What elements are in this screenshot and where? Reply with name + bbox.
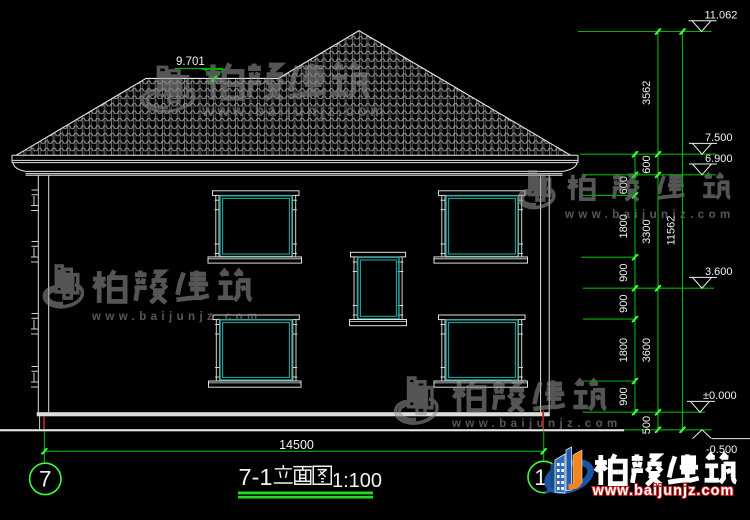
svg-text:14500: 14500 (279, 438, 314, 452)
svg-text:900: 900 (618, 264, 630, 282)
svg-text:1800: 1800 (618, 338, 630, 362)
svg-text:7-1: 7-1 (239, 464, 273, 490)
svg-text:±0.000: ±0.000 (703, 390, 737, 402)
svg-text:1: 1 (534, 465, 547, 490)
svg-text:9.701: 9.701 (176, 56, 205, 68)
svg-text:www.baijunjz.com: www.baijunjz.com (592, 483, 735, 499)
svg-text:900: 900 (618, 295, 630, 313)
svg-text:1:100: 1:100 (332, 470, 382, 492)
svg-text:600: 600 (641, 155, 653, 173)
svg-text:3.600: 3.600 (705, 266, 733, 278)
svg-text:3600: 3600 (641, 338, 653, 362)
svg-text:www.baijunjz.com: www.baijunjz.com (451, 418, 622, 430)
svg-text:www.baijunjz.com: www.baijunjz.com (564, 209, 735, 221)
svg-text:500: 500 (641, 416, 653, 434)
svg-text:3562: 3562 (641, 81, 653, 105)
svg-text:7: 7 (39, 467, 52, 492)
svg-text:6.900: 6.900 (705, 153, 733, 165)
svg-text:7.500: 7.500 (705, 132, 733, 144)
svg-text:11.062: 11.062 (705, 10, 738, 22)
svg-text:www.baijunjz.com: www.baijunjz.com (91, 311, 262, 323)
svg-text:900: 900 (618, 387, 630, 405)
svg-text:3300: 3300 (641, 219, 653, 243)
svg-text:www.baijunjz.com: www.baijunjz.com (201, 103, 387, 120)
